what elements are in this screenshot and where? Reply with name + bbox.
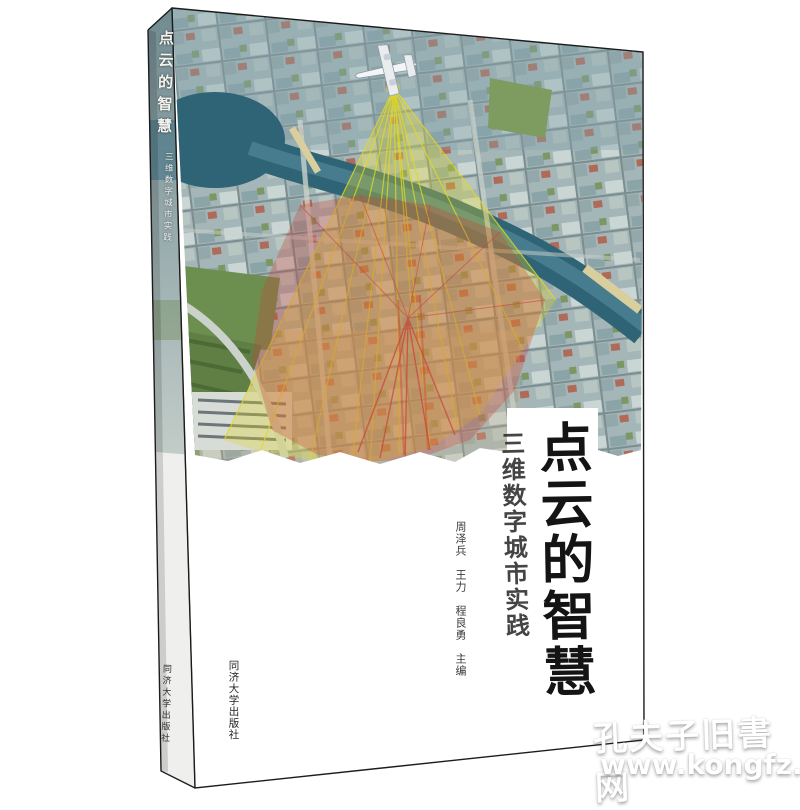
spine-subtitle: 三维数字城市实践 bbox=[162, 152, 172, 244]
spine-publisher: 同济大学出版社 bbox=[159, 664, 170, 745]
book-subtitle: 三维数字城市实践 bbox=[498, 431, 527, 640]
book-publisher: 同济大学出版社 bbox=[228, 660, 239, 741]
watermark-site-url: www.kongfz.com bbox=[600, 748, 800, 781]
book-authors: 周泽兵 王力 程良勇 主编 bbox=[455, 521, 466, 677]
spine-title: 点云的智慧 bbox=[156, 30, 173, 140]
book-title: 点云的智慧 bbox=[535, 420, 593, 701]
cover-photo bbox=[145, 0, 660, 480]
book-photo bbox=[0, 0, 800, 800]
